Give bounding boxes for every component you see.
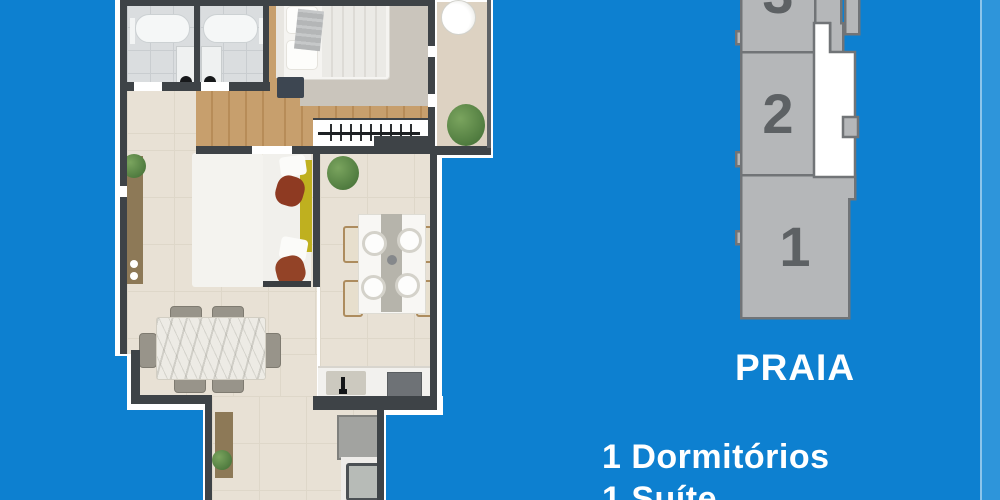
sofa-base bbox=[263, 281, 311, 287]
unit-name-label: PRAIA bbox=[690, 347, 900, 389]
bed-throw-blanket bbox=[294, 9, 324, 51]
flyer-canvas: 3 2 1 PRAIA 1 Dormitórios 1 Suíte bbox=[0, 0, 1000, 500]
plate bbox=[361, 275, 386, 300]
laundry-sink bbox=[346, 463, 380, 500]
feature-bedrooms: 1 Dormitórios bbox=[602, 436, 830, 478]
wall bbox=[120, 0, 434, 6]
block-3-number: 3 bbox=[762, 0, 793, 25]
wall bbox=[377, 408, 384, 500]
nightstand bbox=[277, 77, 304, 98]
closet-rail bbox=[318, 132, 420, 135]
decor-vase bbox=[130, 272, 138, 280]
wall bbox=[313, 396, 437, 410]
bed-duvet bbox=[322, 0, 386, 77]
decor-vase bbox=[130, 260, 138, 268]
washing-machine bbox=[337, 415, 381, 460]
plate bbox=[395, 273, 420, 298]
balcony-chair bbox=[441, 0, 476, 35]
door-opening bbox=[201, 82, 229, 91]
marble-dining-table bbox=[156, 317, 266, 380]
window bbox=[120, 186, 127, 197]
window bbox=[428, 46, 435, 57]
towel-rack bbox=[130, 18, 135, 44]
living-rug bbox=[192, 153, 263, 287]
plate bbox=[397, 228, 422, 253]
bed-headboard bbox=[276, 0, 284, 78]
stove bbox=[387, 372, 422, 398]
door-opening bbox=[134, 82, 162, 91]
wall bbox=[434, 146, 491, 155]
wall bbox=[194, 0, 200, 88]
dining-chair bbox=[139, 333, 157, 368]
balcony-plant bbox=[447, 104, 485, 146]
wall bbox=[313, 150, 320, 287]
kitchen-faucet bbox=[339, 389, 347, 394]
key-plan-gray-tab bbox=[845, 0, 859, 34]
wall bbox=[430, 150, 437, 400]
wall bbox=[428, 0, 435, 150]
wall bbox=[120, 0, 127, 354]
wall bbox=[131, 395, 212, 404]
bathtub bbox=[203, 14, 258, 43]
plate bbox=[362, 231, 387, 256]
table-centerpiece bbox=[387, 255, 397, 265]
wall bbox=[205, 395, 212, 500]
door-opening bbox=[252, 146, 292, 154]
wall bbox=[263, 0, 269, 88]
window bbox=[428, 94, 435, 107]
feature-list: 1 Dormitórios 1 Suíte bbox=[602, 436, 830, 500]
block-1-number: 1 bbox=[779, 215, 810, 278]
nook-plant bbox=[327, 156, 359, 190]
right-edge-stripe bbox=[980, 0, 1000, 500]
sofa-pillow bbox=[279, 154, 308, 177]
bathtub bbox=[135, 14, 190, 43]
block-2-number: 2 bbox=[762, 82, 793, 145]
laundry-plant bbox=[212, 450, 232, 470]
key-plan-unit-notch bbox=[843, 117, 858, 137]
feature-suite: 1 Suíte bbox=[602, 478, 830, 500]
hall-floor bbox=[127, 86, 196, 154]
balcony-railing bbox=[487, 0, 491, 148]
building-key-plan: 3 2 1 bbox=[735, 0, 861, 320]
